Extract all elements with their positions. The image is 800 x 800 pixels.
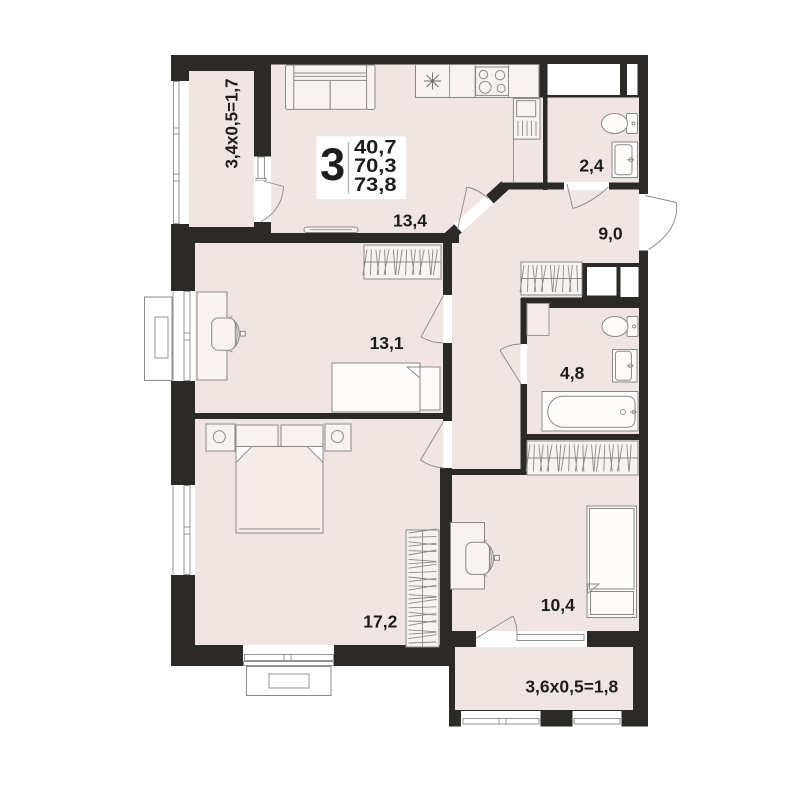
svg-text:13,4: 13,4 bbox=[393, 211, 427, 231]
svg-text:3: 3 bbox=[320, 139, 345, 190]
svg-text:13,1: 13,1 bbox=[370, 333, 404, 353]
svg-text:10,4: 10,4 bbox=[541, 595, 575, 615]
svg-text:4,8: 4,8 bbox=[560, 363, 585, 383]
svg-text:17,2: 17,2 bbox=[363, 612, 397, 632]
svg-text:2,4: 2,4 bbox=[579, 156, 604, 176]
svg-text:3,6x0,5=1,8: 3,6x0,5=1,8 bbox=[525, 677, 618, 697]
svg-text:73,8: 73,8 bbox=[354, 175, 397, 196]
svg-text:3,4x0,5=1,7: 3,4x0,5=1,7 bbox=[222, 79, 242, 169]
svg-text:9,0: 9,0 bbox=[598, 224, 623, 244]
